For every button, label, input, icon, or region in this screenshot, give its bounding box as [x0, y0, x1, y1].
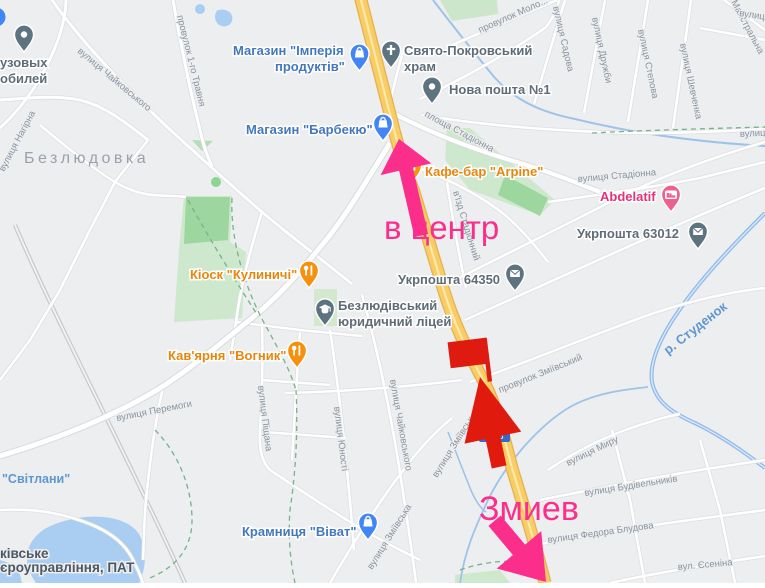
svg-text:Магазин "Імперія: Магазин "Імперія: [233, 43, 344, 58]
svg-text:Кав'ярня "Вогник": Кав'ярня "Вогник": [168, 348, 286, 363]
svg-text:ківське: ківське: [0, 546, 49, 561]
svg-text:узовых: узовых: [0, 55, 48, 70]
svg-text:Укрпошта 63012: Укрпошта 63012: [577, 226, 679, 241]
svg-text:юридичний ліцей: юридичний ліцей: [338, 314, 451, 329]
svg-text:Кафе-бар "Arpine": Кафе-бар "Arpine": [425, 164, 543, 179]
svg-text:"Світлани": "Світлани": [2, 472, 70, 486]
svg-text:вулиця: вулиця: [740, 127, 765, 140]
svg-text:Магазин "Барбекю": Магазин "Барбекю": [246, 122, 373, 137]
svg-text:храм: храм: [404, 59, 436, 74]
svg-text:Abdelatif: Abdelatif: [600, 189, 656, 204]
svg-text:в центр: в центр: [384, 209, 499, 246]
svg-text:обилей: обилей: [0, 71, 47, 86]
svg-text:Крамниця "Віват": Крамниця "Віват": [242, 524, 357, 539]
svg-text:Свято-Покровський: Свято-Покровський: [404, 43, 532, 58]
svg-text:Нова пошта №1: Нова пошта №1: [449, 82, 551, 97]
svg-text:Безлюдовка: Безлюдовка: [24, 150, 149, 167]
svg-text:Кіоск "Кулиничі": Кіоск "Кулиничі": [190, 267, 297, 282]
svg-text:Безлюдівський: Безлюдівський: [338, 298, 437, 313]
svg-text:єроуправління, ПАТ: єроуправління, ПАТ: [0, 560, 135, 575]
svg-text:продуктів": продуктів": [275, 59, 345, 74]
svg-text:Укрпошта 64350: Укрпошта 64350: [398, 272, 500, 287]
